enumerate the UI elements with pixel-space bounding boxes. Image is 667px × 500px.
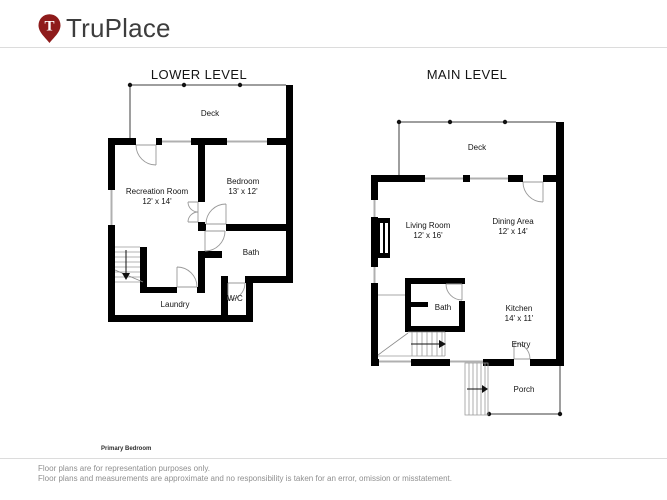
main-exterior-walls bbox=[371, 122, 564, 366]
fireplace bbox=[378, 218, 390, 258]
main-level-title: MAIN LEVEL bbox=[427, 67, 508, 82]
room-label-laundry: Laundry bbox=[161, 300, 190, 310]
truplace-logo: T TruPlace bbox=[36, 13, 171, 44]
room-label-living: Living Room 12' x 16' bbox=[406, 221, 450, 241]
lower-interior-walls bbox=[140, 145, 293, 293]
brand-name: TruPlace bbox=[66, 13, 171, 44]
pin-letter: T bbox=[44, 19, 54, 35]
floor-plan-page: T TruPlace LOWER LEVEL bbox=[0, 0, 667, 500]
main-windows bbox=[374, 178, 509, 363]
disclaimer-line-2: Floor plans and measurements are approxi… bbox=[38, 474, 452, 483]
primary-bedroom-note: Primary Bedroom bbox=[101, 446, 151, 452]
disclaimer-line-1: Floor plans are for representation purpo… bbox=[38, 464, 210, 473]
footer-divider bbox=[0, 458, 667, 459]
room-label-wc: W/C bbox=[227, 294, 243, 304]
truplace-pin-icon: T bbox=[36, 13, 63, 44]
room-label-porch: Porch bbox=[514, 385, 535, 395]
room-label-main-bath: Bath bbox=[435, 303, 451, 313]
room-label-lower-bath: Bath bbox=[243, 248, 259, 258]
main-level-plan bbox=[365, 115, 590, 435]
room-label-entry: Entry bbox=[512, 340, 531, 350]
room-label-kitchen: Kitchen 14' x 11' bbox=[505, 304, 534, 324]
header-divider bbox=[0, 47, 667, 48]
lower-staircase bbox=[115, 247, 143, 282]
room-label-bedroom: Bedroom 13' x 12' bbox=[227, 177, 259, 197]
room-label-dining: Dining Area 12' x 14' bbox=[492, 217, 533, 237]
room-label-lower-deck: Deck bbox=[201, 109, 219, 119]
room-label-main-deck: Deck bbox=[468, 143, 486, 153]
main-door-swings bbox=[446, 182, 543, 359]
lower-door-swings bbox=[136, 145, 245, 300]
room-label-recreation: Recreation Room 12' x 14' bbox=[126, 187, 188, 207]
